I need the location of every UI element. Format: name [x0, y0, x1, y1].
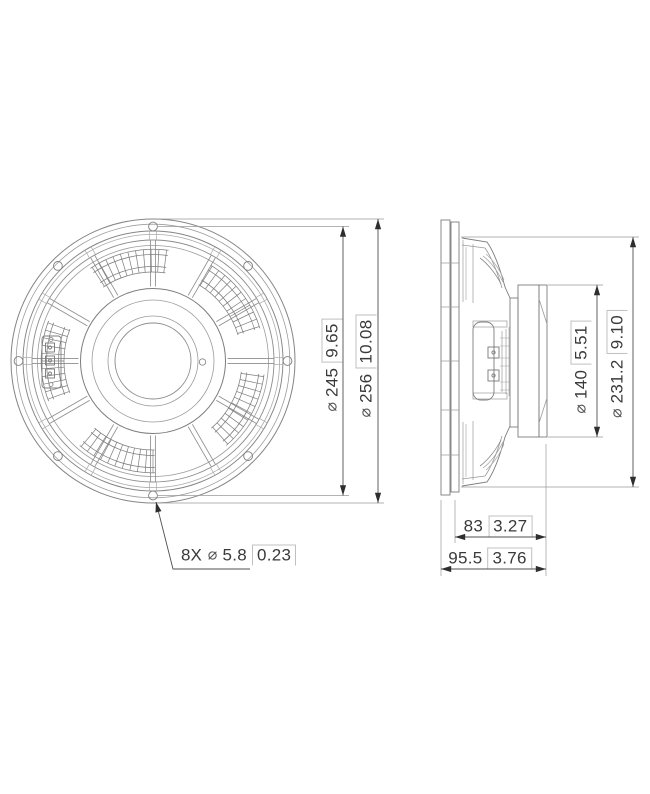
hole-count-value: 8X	[181, 547, 202, 564]
outer-diameter-imperial-value: 10.08	[356, 315, 377, 369]
diameter-icon: ⌀	[324, 402, 340, 412]
diameter-icon: ⌀	[358, 408, 374, 418]
depth-to-flange-dimension-label: 83 3.27	[464, 516, 533, 537]
diameter-icon: ⌀	[573, 404, 589, 414]
outer-diameter-dimension-label: ⌀ 256 10.08	[356, 315, 377, 418]
magnet-diameter-imperial-value: 5.51	[571, 320, 592, 364]
front-view-basket	[11, 219, 295, 503]
front-view-details	[42, 336, 206, 388]
dimension-lines	[156, 219, 633, 569]
hole-imperial-value: 0.23	[252, 545, 296, 566]
bolt-circle-metric-value: 245	[324, 368, 341, 397]
diameter-icon: ⌀	[208, 547, 218, 563]
bolt-circle-dimension-label: ⌀ 245 9.65	[322, 318, 343, 411]
depth-to-flange-imperial-value: 3.27	[488, 516, 532, 537]
basket-diameter-imperial-value: 9.10	[607, 310, 628, 354]
hole-metric-value: 5.8	[222, 547, 247, 564]
extension-lines	[157, 219, 639, 576]
bolt-circle-imperial-value: 9.65	[322, 318, 343, 362]
technical-drawing-page: ⌀ 245 9.65 ⌀ 256 10.08 ⌀ 140 5.51 ⌀ 231.…	[0, 0, 650, 794]
basket-diameter-metric-value: 231.2	[609, 359, 626, 403]
dimension-arrowheads	[153, 219, 636, 572]
outer-diameter-metric-value: 256	[358, 374, 375, 403]
total-depth-metric-value: 95.5	[448, 550, 482, 567]
total-depth-imperial-value: 3.76	[488, 548, 532, 569]
side-view	[441, 220, 547, 495]
mounting-holes-callout-label: 8X ⌀ 5.8 0.23	[181, 545, 296, 566]
magnet-diameter-dimension-label: ⌀ 140 5.51	[571, 320, 592, 413]
magnet-diameter-metric-value: 140	[573, 370, 590, 399]
total-depth-dimension-label: 95.5 3.76	[448, 548, 532, 569]
diameter-icon: ⌀	[609, 408, 625, 418]
depth-to-flange-metric-value: 83	[464, 518, 484, 535]
basket-diameter-dimension-label: ⌀ 231.2 9.10	[607, 310, 628, 418]
